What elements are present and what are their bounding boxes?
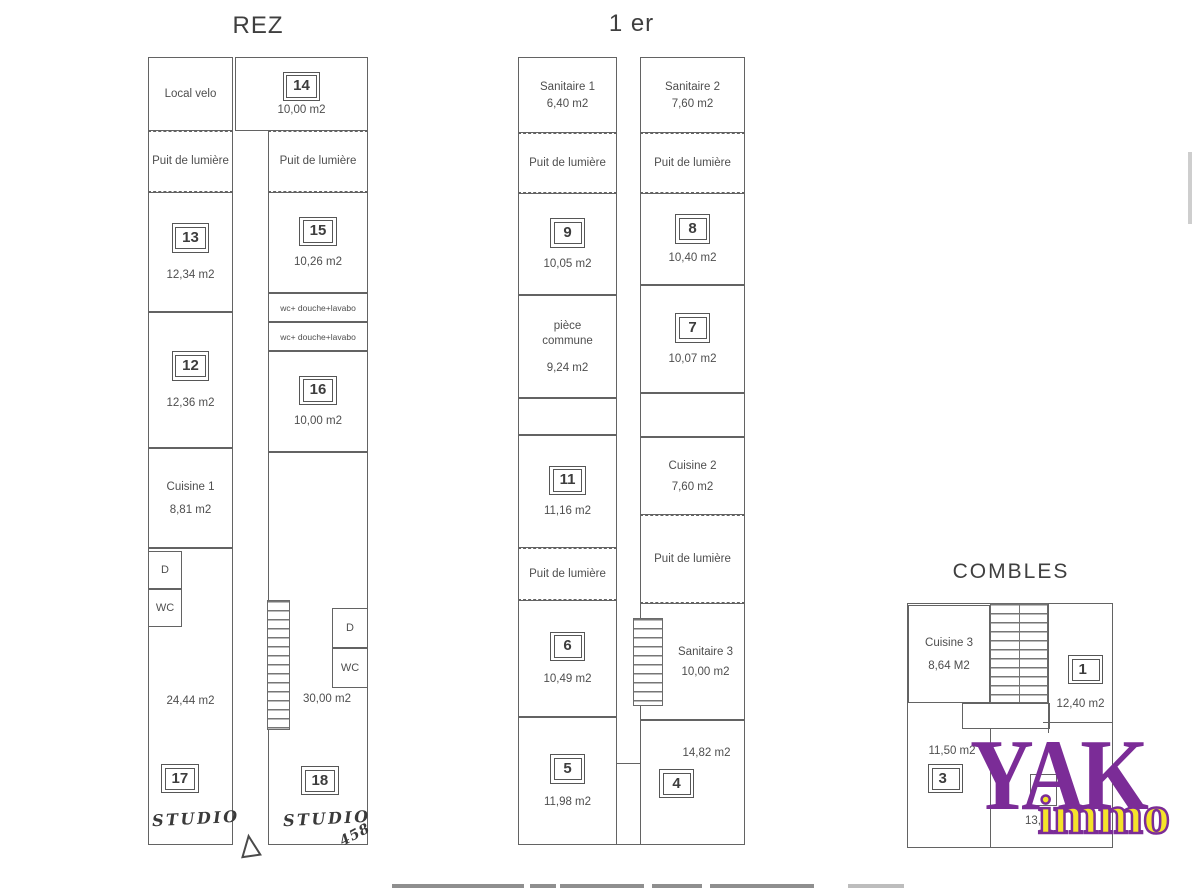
room-6-number-box: 6 bbox=[550, 632, 585, 661]
wc-cell-right-label: WC bbox=[341, 662, 359, 674]
room-12-number-box: 12 bbox=[172, 351, 210, 380]
room-16-number: 16 bbox=[303, 379, 334, 401]
door-cell-right: D bbox=[332, 608, 368, 648]
room-17-handwriting: Studio bbox=[152, 807, 241, 831]
room-7-number-box: 7 bbox=[675, 313, 710, 342]
shower-room-2-label: wc+ douche+lavabo bbox=[280, 332, 356, 342]
room-9-area: 10,05 m2 bbox=[544, 258, 592, 270]
room-15-number: 15 bbox=[303, 220, 334, 242]
room-sanitaire-3-label: Sanitaire 3 bbox=[678, 645, 733, 659]
room-11-area: 11,16 m2 bbox=[544, 505, 591, 517]
room-cuisine-1-label: Cuisine 1 bbox=[167, 480, 215, 494]
room-5-number-box: 5 bbox=[550, 754, 585, 783]
room-8-area: 10,40 m2 bbox=[669, 252, 717, 264]
door-cell-left: D bbox=[148, 551, 182, 589]
room-5-number: 5 bbox=[554, 758, 582, 780]
room-9: 9 10,05 m2 bbox=[518, 193, 617, 295]
room-7-area: 10,07 m2 bbox=[669, 353, 717, 365]
plan-premier: Sanitaire 1 6,40 m2 Puit de lumière 9 10… bbox=[518, 57, 745, 845]
room-14-area: 10,00 m2 bbox=[278, 104, 326, 116]
shower-room-1-label: wc+ douche+lavabo bbox=[280, 303, 356, 313]
room-13-number-box: 13 bbox=[172, 223, 210, 252]
room-11-number: 11 bbox=[553, 469, 583, 491]
room-7-number: 7 bbox=[679, 317, 707, 339]
room-4-number: 4 bbox=[663, 773, 691, 795]
room-8-number-box: 8 bbox=[675, 214, 710, 243]
room-16-number-box: 16 bbox=[299, 376, 337, 405]
room-cuisine-3-area: 8,64 M2 bbox=[928, 660, 970, 672]
room-piece-commune: pièce commune 9,24 m2 bbox=[518, 295, 617, 398]
room-13-number: 13 bbox=[175, 227, 206, 249]
room-cuisine-2-label: Cuisine 2 bbox=[669, 459, 717, 473]
plan-title-combles: COMBLES bbox=[905, 560, 1117, 584]
room-15-number-box: 15 bbox=[299, 217, 337, 246]
room-cuisine-3: Cuisine 3 8,64 M2 bbox=[908, 605, 990, 703]
room-11-number-box: 11 bbox=[549, 466, 586, 495]
light-well-1er-left-bottom: Puit de lumière bbox=[518, 548, 617, 600]
room-local-velo: Local velo bbox=[148, 57, 233, 131]
plan-rez: Local velo Puit de lumière 13 12,34 m2 1… bbox=[148, 57, 368, 845]
yak-logo-immo: immo bbox=[1038, 788, 1170, 842]
shower-room-2: wc+ douche+lavabo bbox=[268, 322, 368, 351]
staircase-combles bbox=[990, 603, 1048, 703]
room-cuisine-2-area: 7,60 m2 bbox=[672, 481, 714, 493]
light-well-1er-left-bottom-label: Puit de lumière bbox=[529, 567, 606, 581]
staircase-premier bbox=[633, 618, 663, 706]
scan-bottom-artifact bbox=[848, 884, 904, 888]
room-sanitaire-2-area: 7,60 m2 bbox=[672, 98, 714, 110]
room-17-area: 24,44 m2 bbox=[149, 695, 232, 707]
room-piece-commune-area: 9,24 m2 bbox=[547, 362, 589, 374]
plan-title-premier: 1 er bbox=[518, 10, 745, 38]
wc-cell-left-label: WC bbox=[156, 602, 174, 614]
room-sanitaire-1-area: 6,40 m2 bbox=[547, 98, 589, 110]
room-14-number-box: 14 bbox=[283, 72, 321, 101]
room-14-number: 14 bbox=[286, 75, 317, 97]
room-3-number: 3 bbox=[932, 768, 960, 790]
room-17-number: 17 bbox=[165, 768, 196, 790]
room-cuisine-1-area: 8,81 m2 bbox=[170, 504, 212, 516]
light-well-rez-left-label: Puit de lumière bbox=[152, 154, 229, 168]
room-6-area: 10,49 m2 bbox=[544, 673, 592, 685]
room-15: 15 10,26 m2 bbox=[268, 192, 368, 293]
room-cuisine-2: Cuisine 2 7,60 m2 bbox=[640, 437, 745, 515]
room-4: 14,82 m2 4 bbox=[640, 720, 745, 845]
light-well-1er-right-top: Puit de lumière bbox=[640, 133, 745, 193]
room-local-velo-label: Local velo bbox=[165, 87, 217, 101]
room-4-number-box: 4 bbox=[659, 769, 694, 798]
room-piece-commune-label: pièce commune bbox=[532, 319, 604, 348]
staircase-rez bbox=[267, 600, 290, 730]
room-16-area: 10,00 m2 bbox=[294, 415, 342, 427]
room-6: 6 10,49 m2 bbox=[518, 600, 617, 717]
room-5-area: 11,98 m2 bbox=[544, 796, 591, 808]
room-1-number: 1 bbox=[1072, 659, 1100, 681]
room-16: 16 10,00 m2 bbox=[268, 351, 368, 452]
room-6-number: 6 bbox=[554, 635, 582, 657]
wc-cell-left: WC bbox=[148, 589, 182, 627]
room-18-number-box: 18 bbox=[301, 766, 339, 795]
room-sanitaire-2-label: Sanitaire 2 bbox=[665, 80, 720, 94]
room-11: 11 11,16 m2 bbox=[518, 435, 617, 548]
room-12: 12 12,36 m2 bbox=[148, 312, 233, 448]
door-cell-right-label: D bbox=[346, 622, 354, 634]
room-13: 13 12,34 m2 bbox=[148, 192, 233, 312]
room-1-area: 12,40 m2 bbox=[1048, 698, 1113, 710]
room-15-area: 10,26 m2 bbox=[294, 256, 342, 268]
landing-left bbox=[518, 398, 617, 435]
room-18-number: 18 bbox=[305, 770, 336, 792]
light-well-rez-right-label: Puit de lumière bbox=[280, 154, 357, 168]
room-12-area: 12,36 m2 bbox=[167, 397, 215, 409]
room-1-number-box: 1 bbox=[1068, 655, 1103, 684]
room-7: 7 10,07 m2 bbox=[640, 285, 745, 393]
light-well-1er-right-top-label: Puit de lumière bbox=[654, 156, 731, 170]
room-sanitaire-2: Sanitaire 2 7,60 m2 bbox=[640, 57, 745, 133]
corridor-bottom-line bbox=[617, 844, 640, 845]
scan-bottom-artifact bbox=[530, 884, 556, 888]
room-18-area: 30,00 m2 bbox=[287, 693, 367, 705]
light-well-1er-right-bottom-label: Puit de lumière bbox=[654, 552, 731, 566]
corridor-end-line bbox=[617, 763, 640, 764]
scan-edge-artifact bbox=[1188, 152, 1192, 224]
light-well-rez-right: Puit de lumière bbox=[268, 131, 368, 192]
light-well-rez-left: Puit de lumière bbox=[148, 131, 233, 192]
light-well-1er-left-top-label: Puit de lumière bbox=[529, 156, 606, 170]
room-14: 14 10,00 m2 bbox=[235, 57, 368, 131]
light-well-1er-left-top: Puit de lumière bbox=[518, 133, 617, 193]
room-8: 8 10,40 m2 bbox=[640, 193, 745, 285]
landing-right bbox=[640, 393, 745, 437]
room-cuisine-3-label: Cuisine 3 bbox=[925, 636, 973, 650]
wc-cell-right: WC bbox=[332, 648, 368, 688]
room-sanitaire-1: Sanitaire 1 6,40 m2 bbox=[518, 57, 617, 133]
room-12-number: 12 bbox=[175, 355, 206, 377]
room-4-area: 14,82 m2 bbox=[673, 747, 740, 759]
light-well-1er-right-bottom: Puit de lumière bbox=[640, 515, 745, 603]
plan-title-rez: REZ bbox=[148, 12, 368, 40]
room-sanitaire-1-label: Sanitaire 1 bbox=[540, 80, 595, 94]
room-cuisine-1: Cuisine 1 8,81 m2 bbox=[148, 448, 233, 548]
scan-bottom-artifact bbox=[560, 884, 644, 888]
room-5: 5 11,98 m2 bbox=[518, 717, 617, 845]
room-sanitaire-3-area: 10,00 m2 bbox=[682, 666, 730, 678]
room-17-number-box: 17 bbox=[161, 764, 199, 793]
scan-bottom-artifact bbox=[710, 884, 814, 888]
room-9-number: 9 bbox=[554, 222, 582, 244]
room-13-area: 12,34 m2 bbox=[167, 269, 215, 281]
triangle-mark-icon bbox=[236, 831, 263, 860]
room-3-number-box: 3 bbox=[928, 764, 963, 793]
room-9-number-box: 9 bbox=[550, 218, 585, 247]
door-cell-left-label: D bbox=[161, 564, 169, 576]
scanned-floorplan-page: REZ Local velo Puit de lumière 13 12,34 … bbox=[0, 0, 1200, 888]
shower-room-1: wc+ douche+lavabo bbox=[268, 293, 368, 322]
scan-bottom-artifact bbox=[392, 884, 524, 888]
room-8-number: 8 bbox=[679, 218, 707, 240]
scan-bottom-artifact bbox=[652, 884, 702, 888]
